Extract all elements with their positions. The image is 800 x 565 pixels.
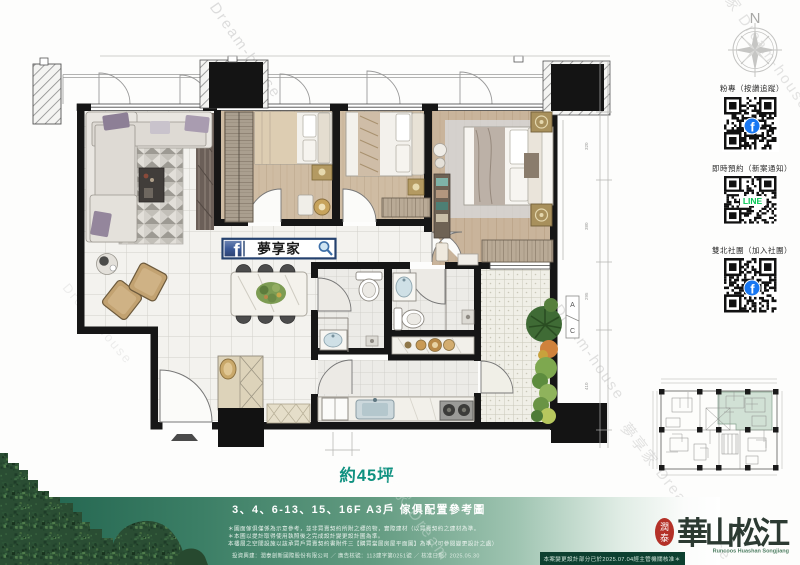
svg-text:粉專（按讚追蹤）: 粉專（按讚追蹤） <box>720 83 784 93</box>
svg-text:＊本圖以提計取得使用執照後之完成設計變更設計圖為準。: ＊本圖以提計取得使用執照後之完成設計變更設計圖為準。 <box>228 532 384 540</box>
svg-text:410: 410 <box>584 382 589 390</box>
svg-text:本案變更設計部分已於2025.07.04經主管機關核准＊: 本案變更設計部分已於2025.07.04經主管機關核准＊ <box>543 555 680 563</box>
svg-text:華山松江: 華山松江 <box>677 516 790 551</box>
svg-text:A: A <box>570 302 575 309</box>
svg-text:f: f <box>233 241 240 262</box>
svg-text:本樓層之空間設施以該承買戶買賣契約書附件三【購買當層房屋平面: 本樓層之空間設施以該承買戶買賣契約書附件三【購買當層房屋平面圖】為準（可參閱變更… <box>228 540 498 548</box>
svg-text:f: f <box>750 120 755 135</box>
svg-text:320: 320 <box>584 142 589 150</box>
svg-text:泰: 泰 <box>660 532 669 543</box>
svg-text:380: 380 <box>584 222 589 230</box>
svg-text:C: C <box>570 328 575 335</box>
svg-text:潤: 潤 <box>660 522 669 532</box>
svg-text:＊圖面傢俱僅係為示意參考，並非買賣契約所附之標的物，實際建材: ＊圖面傢俱僅係為示意參考，並非買賣契約所附之標的物，實際建材（以買賣契約之建材為… <box>228 525 480 533</box>
svg-text:f: f <box>750 282 755 297</box>
svg-text:即時預約（新案通知）: 即時預約（新案通知） <box>712 163 792 173</box>
svg-text:295: 295 <box>584 292 589 300</box>
svg-text:3、4、6-13、15、16F A3戶 傢俱配置參考圖: 3、4、6-13、15、16F A3戶 傢俱配置參考圖 <box>232 502 486 516</box>
svg-text:夢享家: 夢享家 <box>257 241 301 257</box>
svg-text:LINE: LINE <box>743 196 763 206</box>
svg-text:雙北社團（加入社團）: 雙北社團（加入社團） <box>712 245 792 255</box>
svg-text:Runcoos Huashan Songjiang: Runcoos Huashan Songjiang <box>713 549 789 555</box>
